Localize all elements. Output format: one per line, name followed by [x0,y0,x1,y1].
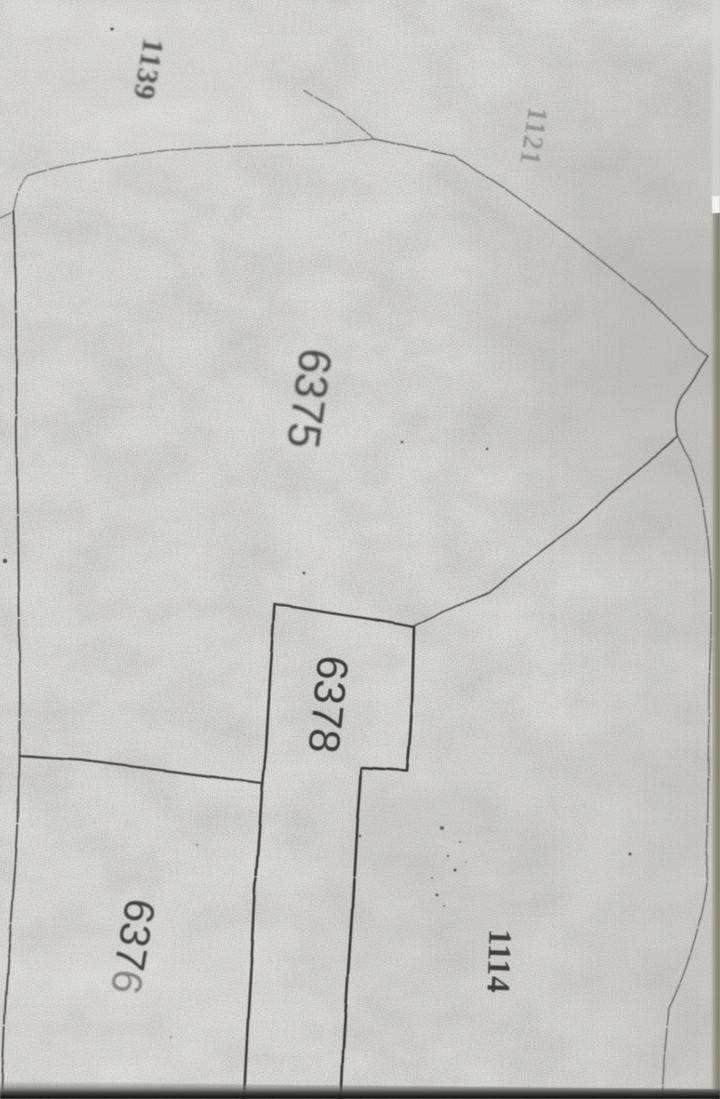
svg-text:6378: 6378 [298,653,357,755]
svg-text:1114: 1114 [479,928,517,994]
